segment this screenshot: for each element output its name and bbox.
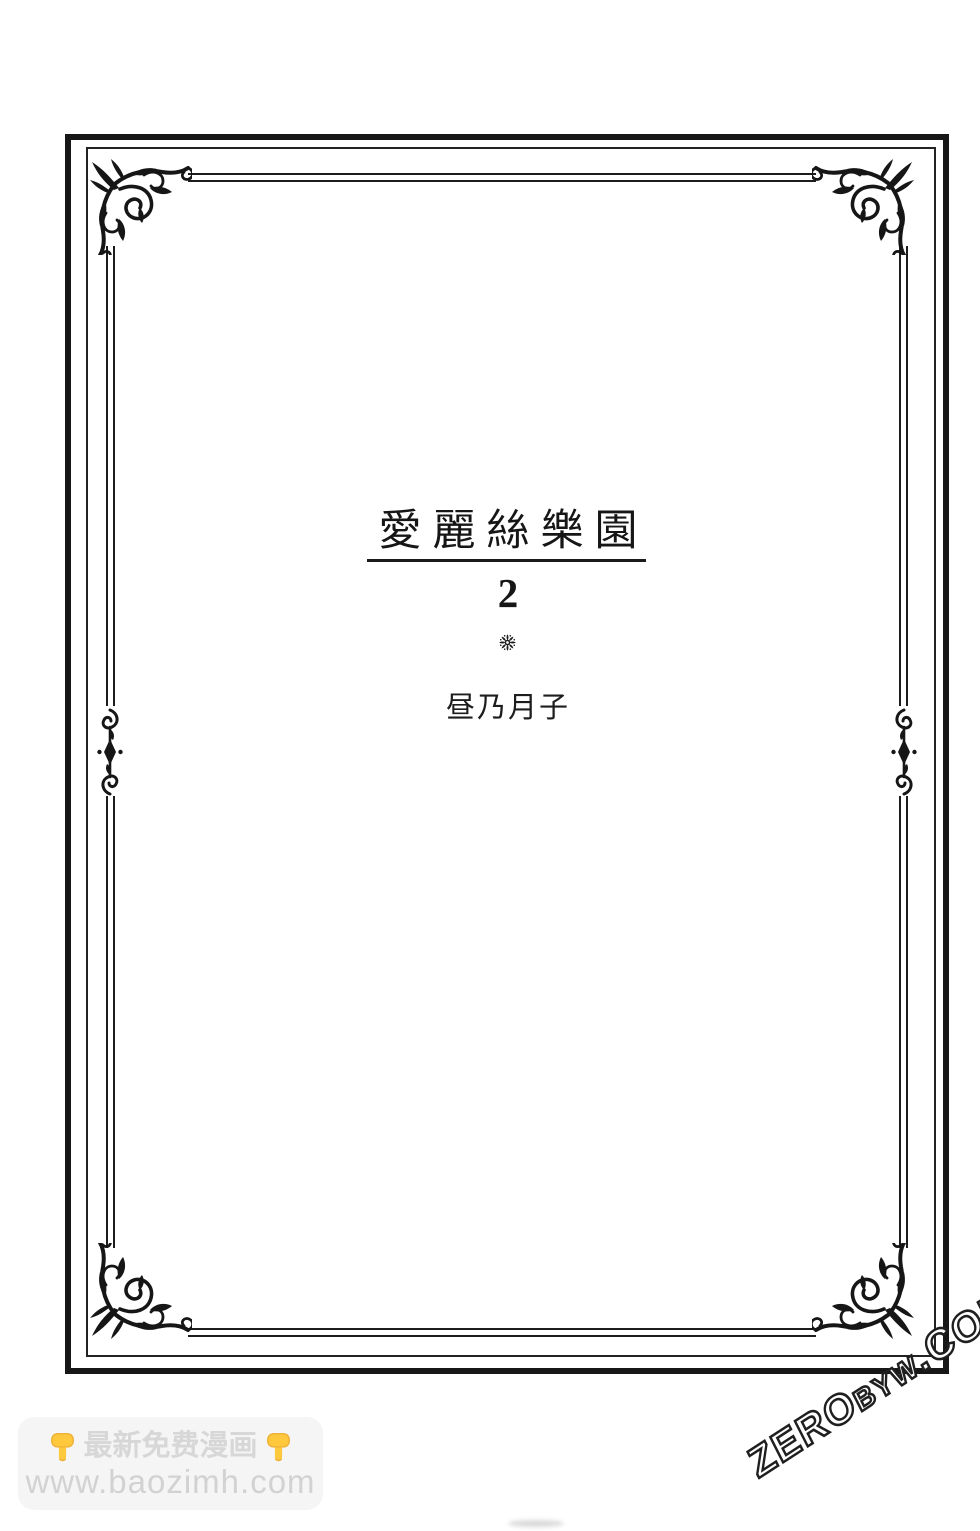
book-title: 愛麗絲樂園	[66, 496, 950, 558]
double-line-bottom	[188, 1328, 816, 1337]
corner-flourish-icon	[812, 157, 916, 255]
baozimh-watermark-text: 最新免费漫画	[83, 1432, 257, 1461]
zerobyw-watermark-part1: ZERO	[741, 1379, 864, 1487]
double-line-top	[188, 173, 816, 182]
volume-number: 2	[66, 569, 950, 617]
double-line-left-upper	[106, 246, 115, 706]
scan-smudge	[508, 1520, 564, 1527]
inner-thin-frame	[86, 147, 936, 1357]
double-line-right-lower	[899, 796, 908, 1248]
corner-flourish-icon	[88, 157, 192, 255]
corner-flourish-icon	[812, 1243, 916, 1341]
double-line-left-lower	[106, 796, 115, 1248]
manga-title-page: 愛麗絲樂園 2 昼乃月子 最新免费漫画 www.baozimh.com ZERO…	[0, 0, 980, 1531]
double-line-right-upper	[899, 246, 908, 706]
title-underline	[367, 559, 646, 562]
corner-flourish-icon	[88, 1243, 192, 1341]
rosette-divider-icon	[498, 633, 517, 652]
baozimh-watermark-url: www.baozimh.com	[25, 1465, 315, 1498]
baozimh-watermark-line1: 最新免费漫画	[46, 1430, 294, 1463]
baozimh-watermark-badge: 最新免费漫画 www.baozimh.com	[18, 1417, 323, 1510]
pointing-down-hand-icon	[262, 1430, 295, 1463]
pointing-down-hand-icon	[46, 1430, 79, 1463]
author-name: 昼乃月子	[66, 684, 950, 726]
